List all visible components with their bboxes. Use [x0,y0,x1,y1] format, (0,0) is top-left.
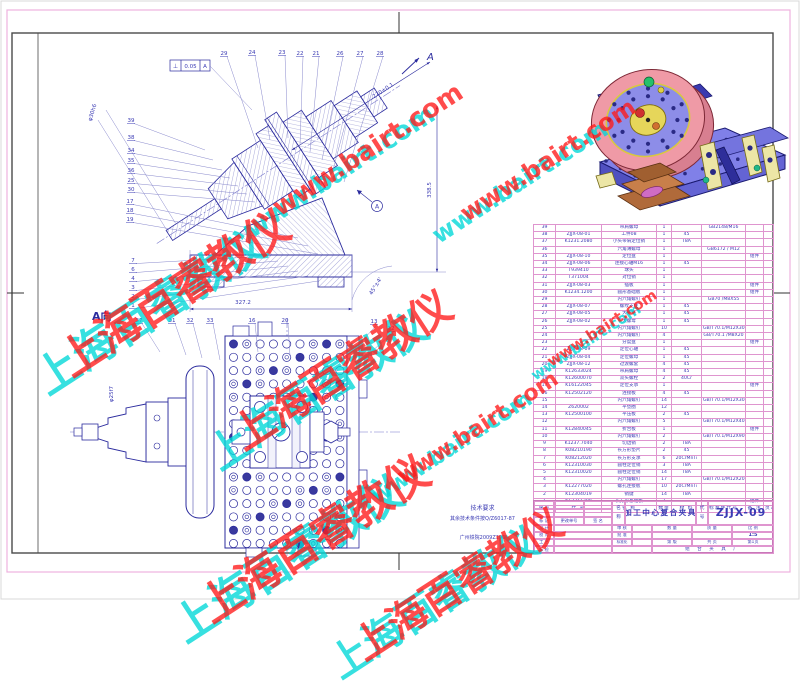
plate-hole [336,340,344,348]
bom-cell [702,369,746,376]
blank-cell [612,546,652,554]
bom-cell: 1 [657,311,672,318]
bom-row: 10内六角螺钉2GB/T70.1/M12X90 [534,433,774,440]
bom-cell [764,441,774,448]
bom-cell [556,325,602,332]
bom-cell [672,477,702,484]
bom-cell [764,369,774,376]
bom-cell [764,433,774,440]
bom-cell [556,340,602,347]
bom-cell [764,261,774,268]
bom-cell: 14 [657,397,672,404]
bom-cell: K16122045 [556,383,602,390]
bom-cell: 4 [534,477,556,484]
bom-cell: 2 [657,376,672,383]
bom-cell [764,225,774,232]
bom-cell [746,390,764,397]
bom-cell: 32 [534,275,556,282]
plate-hole [309,500,317,508]
bom-cell: 4 [657,369,672,376]
plate-hole [283,500,291,508]
plate-hole [243,380,251,388]
plate-hole [256,486,264,494]
plate-hole [336,393,344,401]
bom-cell [746,297,764,304]
bom-cell: K12840045 [556,426,602,433]
bom-cell: 长方形垫片 [602,448,657,455]
bom-cell [702,275,746,282]
bom-cell [764,469,774,476]
bom-cell: 分度盘 [602,340,657,347]
datum-symbol: A [357,190,383,212]
bom-cell [764,318,774,325]
bom-cell [764,376,774,383]
bom-cell: 45 [672,390,702,397]
bom-cell: 3 [657,462,672,469]
bom-cell [556,297,602,304]
plate-hole [243,486,251,494]
plate-hole [269,486,277,494]
bom-cell [764,426,774,433]
bom-cell: 1 [657,304,672,311]
balloon-number: 32 [187,318,194,324]
bom-cell: T371004 [556,275,602,282]
disc-dot [612,134,616,138]
plate-hole [309,340,317,348]
bom-cell [764,405,774,412]
bom-cell: 1 [657,426,672,433]
bom-cell: 1 [657,268,672,275]
bom-cell: GB2148/M16 [702,225,746,232]
bom-cell [702,361,746,368]
balloon-number: 2 [131,294,135,300]
change-cell [584,509,612,517]
plate-hole [269,539,277,547]
bom-row: 28ZJJX-08-07螺纹支柱145 [534,304,774,311]
plate-hole [296,473,304,481]
bom-cell [746,369,764,376]
bom-row: 17K16122045定位支承1组件 [534,383,774,390]
balloon-number: 29 [221,51,228,57]
plate-hole [243,513,251,521]
name-label: 名称 [612,501,625,525]
bom-row: 37K1231.2080小头带肩定位销1T8A [534,239,774,246]
bom-cell: 1 [657,297,672,304]
bom-cell [702,455,746,462]
bom-row: 39带肩螺母1GB2148/M16 [534,225,774,232]
bom-cell [556,246,602,253]
bom-cell [746,275,764,282]
bom-cell: 28 [534,304,556,311]
bom-cell: K12633024 [556,369,602,376]
plate-hole [229,539,237,547]
bom-cell: 插板 [602,282,657,289]
bom-cell [672,297,702,304]
bom-row: 20ZJJX-08-12过渡螺套445 [534,361,774,368]
plate-hole [283,526,291,534]
bom-cell: T939410 [556,268,602,275]
bom-cell [764,232,774,239]
plate-hole [336,353,344,361]
bom-cell: 34 [534,261,556,268]
disc-dot [661,139,665,143]
bom-cell [764,448,774,455]
bom-cell: 组件 [746,340,764,347]
bom-cell: 圆形基础板 [602,289,657,296]
plate-hole [269,500,277,508]
bom-row: 36六角薄螺母1GB6172 / M12 [534,246,774,253]
bom-cell: 24 [534,333,556,340]
bom-cell: 组件 [746,282,764,289]
bom-cell: 17 [657,477,672,484]
bom-cell [746,318,764,325]
bom-row: 2K12304019销键14T8A [534,491,774,498]
bom-cell: 1 [657,383,672,390]
bom-cell: 平垫圈 [602,405,657,412]
bom-cell: 12 [657,405,672,412]
bom-cell: 45 [672,354,702,361]
notes-line-1: 其余技术条件按Q/Z6017-87 [425,515,540,522]
bom-cell: 19 [534,369,556,376]
plate-hole [256,473,264,481]
bom-cell: K12304019 [556,491,602,498]
bom-cell: 10 [534,433,556,440]
bom-cell: GB6172 / M12 [702,246,746,253]
bom-cell: 2 [657,441,672,448]
balloon-leader [175,324,186,356]
bom-cell [672,275,702,282]
plate-hole [323,473,331,481]
drawing-code: ZJJX-09 [708,501,774,525]
design-value [554,525,612,532]
bom-cell: K1234.1200 [556,289,602,296]
bom-cell: 8 [534,448,556,455]
bom-cell [702,268,746,275]
plate-hole [296,486,304,494]
plate-hole [309,380,317,388]
notes-title: 技术要求 [425,503,540,512]
balloon-number: 27 [357,51,364,57]
bom-cell [556,477,602,484]
dimension-text: 45°±4' [368,277,383,297]
bom-row: 29内六角螺钉1GB70 /M8X55 [534,297,774,304]
balloon-leader [193,324,202,359]
bom-cell [672,268,702,275]
disc-dot [612,102,616,106]
bom-cell: 29 [534,297,556,304]
bom-row: 18K12600070双头螺栓240Cr [534,376,774,383]
bom-cell [702,469,746,476]
bom-cell: 45 [672,369,702,376]
balloon-leader [134,141,213,161]
disc-dot [665,145,669,149]
bom-cell [672,225,702,232]
plate-hole [243,539,251,547]
bom-cell: 10 [657,325,672,332]
bom-cell: 2 [534,491,556,498]
bom-cell [702,405,746,412]
bom-row: 6K12310030圆柱定位销3T8A [534,462,774,469]
bom-cell [764,462,774,469]
bom-cell: ZJJX-08-06 [556,261,602,268]
bom-cell: GB/T70.1/M12X20 [702,477,746,484]
balloon-number: 21 [313,51,320,57]
plate-hole [323,486,331,494]
bom-cell: 5 [534,469,556,476]
bom-cell: 23 [534,340,556,347]
bom-cell: 圆柱定位销 [602,469,657,476]
plate-hole [256,526,264,534]
plate-hole [243,500,251,508]
plate-hole [269,473,277,481]
bom-cell [746,354,764,361]
plate-hole [309,513,317,521]
plate-hole [323,539,331,547]
bom-row: 19K12633024带肩螺母445 [534,369,774,376]
plate-hole [283,353,291,361]
bom-cell: K1231.2080 [556,239,602,246]
balloon-number: 28 [377,51,384,57]
bom-cell [746,376,764,383]
bom-cell: 1 [657,225,672,232]
bom-row: 30K1234.1200圆形基础板1组件 [534,289,774,296]
bom-cell [764,477,774,484]
balloon-number: 37 [136,318,143,324]
bom-cell: 45 [672,232,702,239]
serrated-workpiece [96,404,146,462]
bom-cell [746,455,764,462]
plate-hole [296,513,304,521]
plate-hole [336,486,344,494]
bom-cell [672,383,702,390]
balloon-number: 34 [128,148,135,154]
plate-hole [323,393,331,401]
plate-hole [336,513,344,521]
bom-cell [746,484,764,491]
plate-hole [283,513,291,521]
bom-cell: 1 [657,275,672,282]
bom-cell [672,333,702,340]
bom-cell: 双头螺栓 [602,376,657,383]
bom-cell: 折合板 [602,426,657,433]
plate-hole [243,367,251,375]
plate-hole [296,539,304,547]
balloon-leader [142,324,160,353]
bom-cell: ZJJX-08-01 [556,232,602,239]
bom-cell: ZJJX-08-09 [556,347,602,354]
bom-cell: K12310020 [556,469,602,476]
bom-cell [746,311,764,318]
bom-cell: K08212020 [556,455,602,462]
plate-hole [229,340,237,348]
bom-cell: T8A [672,469,702,476]
std-check-label: 标 检 [534,546,554,554]
bom-cell: 大螺母 [602,318,657,325]
a-direction-view: A向 [70,309,400,558]
bom-cell: 37 [534,239,556,246]
process-value [554,539,612,546]
bom-cell: ZJJX-08-04 [556,354,602,361]
bom-cell [764,412,774,419]
code-label: 代号 [696,501,708,525]
bom-cell [764,246,774,253]
bom-cell [702,318,746,325]
balloon-number: 35 [128,158,135,164]
balloon-leader [213,324,220,361]
bom-cell [746,448,764,455]
bom-cell: 1 [657,347,672,354]
balloon-leader [134,164,230,179]
bom-table: 39带肩螺母1GB2148/M1638ZJJX-08-01工件0814537K1… [533,224,773,513]
bom-cell: T8A [672,239,702,246]
dimension-text: 327.2 [235,300,251,306]
pages-label: 共 页 [692,539,732,546]
bom-cell: 45 [672,361,702,368]
plate-hole [336,500,344,508]
bom-cell: 组件 [746,426,764,433]
plate-hole [269,513,277,521]
bom-cell [746,304,764,311]
bom-row: 24内六角螺钉4GB/T70.1 /M8X20 [534,333,774,340]
review-value [632,525,652,532]
bom-cell: 45 [672,261,702,268]
bom-cell [746,462,764,469]
spindle-assembly [74,366,214,518]
plate-hole [323,353,331,361]
disc-dot [680,102,684,106]
bom-cell [556,433,602,440]
balloon-number: 31 [169,318,176,324]
bom-cell [702,232,746,239]
bom-cell: 22 [534,347,556,354]
bom-cell: 球头 [602,268,657,275]
balloon-number: 16 [249,318,256,324]
bom-row: 35ZJJX-08-10定位盘1组件 [534,253,774,260]
fcf-datum: A [203,64,207,70]
bom-cell: 13 [534,412,556,419]
plate-hole [336,380,344,388]
plate-hole [296,380,304,388]
bom-cell: 螺纹支柱 [602,304,657,311]
bom-cell: 2 [657,433,672,440]
bom-row: 32T371004对位销1 [534,275,774,282]
disc-dot [675,118,679,122]
bom-cell: 长方形支承 [602,455,657,462]
bom-cell [702,412,746,419]
bom-cell [746,405,764,412]
bom-cell [702,491,746,498]
bom-cell [672,426,702,433]
bom-cell: 40Cr [672,376,702,383]
bom-cell: T8A [672,491,702,498]
bom-cell: 12 [534,419,556,426]
edition-label: 第 版 [652,539,692,546]
dimension-text: 338.5 [427,182,433,198]
bom-cell [746,333,764,340]
bom-cell: 11 [534,426,556,433]
bom-row: 33T939410球头1 [534,268,774,275]
bom-cell: 45 [672,412,702,419]
bom-cell: 9 [534,441,556,448]
bom-cell: 内六角螺钉 [602,419,657,426]
disc-dot [646,142,650,146]
plate-hole [336,460,344,468]
plate-hole [269,526,277,534]
fcf-symbol: ⊥ [173,63,178,70]
plate-hole [296,340,304,348]
change-cell [554,509,584,517]
bom-row: 3K12277020螺孔连接板1020CrMnTi [534,484,774,491]
bom-row: 16K12502120连接板445 [534,390,774,397]
balloon-number: 13 [371,319,378,325]
bom-cell [764,239,774,246]
bom-cell: K08210190 [556,448,602,455]
bom-cell: 6 [534,462,556,469]
bom-cell [764,491,774,498]
plate-hole [283,380,291,388]
bom-cell: 1 [657,318,672,325]
bom-cell [746,412,764,419]
disc-dot [685,118,689,122]
bom-row: 34ZJJX-08-06连接心轴M16145 [534,261,774,268]
bom-cell [672,289,702,296]
plate-hole [323,367,331,375]
bom-cell [672,405,702,412]
bom-cell: 20 [534,361,556,368]
qty-label: 数 量 [652,525,692,532]
bom-cell: ZJJX-08-03 [556,282,602,289]
balloon-number: 12 [388,326,395,332]
disc-dot [620,130,624,134]
plate-hole [283,486,291,494]
bom-cell: 六角薄螺母 [602,246,657,253]
bom-cell: GB/T70.1/M12X30 [702,397,746,404]
bom-cell [702,484,746,491]
balloon-number: 3 [131,285,135,291]
bom-cell: 定位盘 [602,253,657,260]
bom-cell [702,261,746,268]
bom-cell [764,268,774,275]
bom-cell [702,311,746,318]
plate-hole [243,340,251,348]
plate-hole [336,539,344,547]
bom-cell: 定位螺母 [602,354,657,361]
view-arrow-label: A [426,52,434,63]
bom-row: 7K08212020长方形支承620CrMnTi [534,455,774,462]
bom-cell: 14 [534,405,556,412]
signature-label: 签 名 [584,517,612,525]
bom-cell [556,333,602,340]
bom-cell [672,340,702,347]
disc-dot [607,118,611,122]
disc-dot [626,91,630,95]
balloon-leader [136,281,318,309]
balloon-number: 33 [207,318,214,324]
bom-cell: 45 [672,304,702,311]
plate-hole [309,486,317,494]
plate-hole [336,406,344,414]
bom-cell [672,246,702,253]
bom-cell: 组件 [746,253,764,260]
plate-hole [323,340,331,348]
disc-dot [646,94,650,98]
page-number: 第1页 [732,539,774,546]
bom-cell: 25 [534,325,556,332]
bom-cell: 2 [657,448,672,455]
plate-hole [229,353,237,361]
bom-cell [764,347,774,354]
bom-cell [672,397,702,404]
